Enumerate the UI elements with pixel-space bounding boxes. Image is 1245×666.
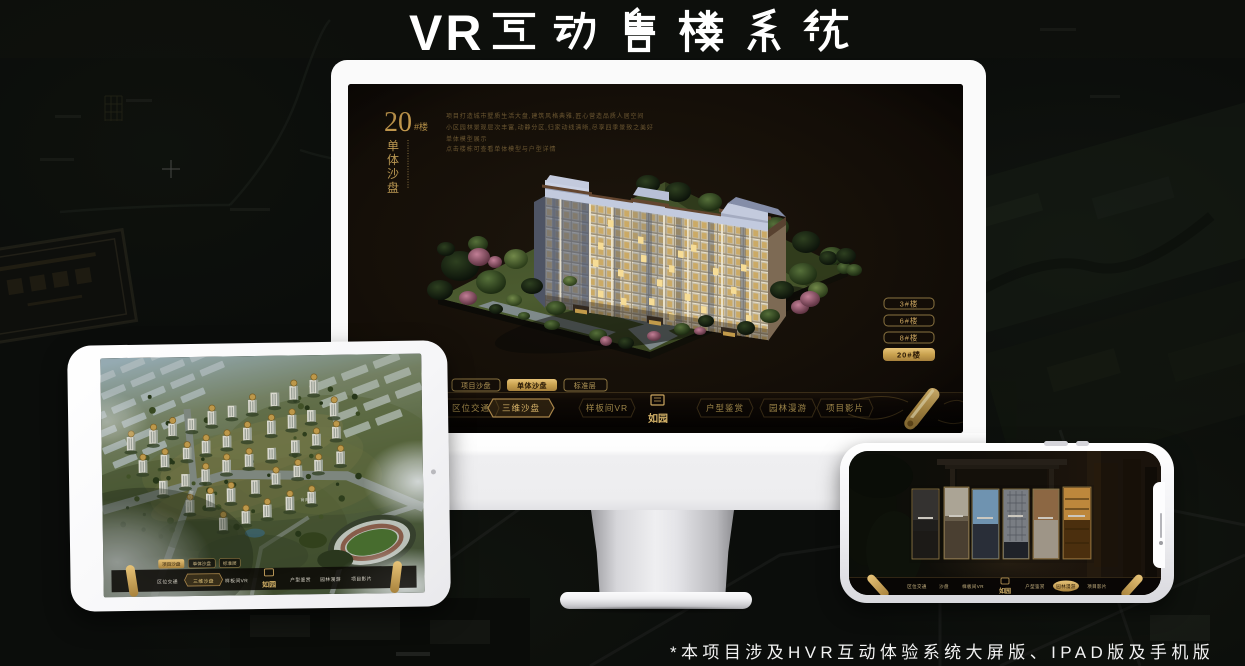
svg-text:项目影片: 项目影片 [1087, 583, 1107, 590]
svg-text:沙盘: 沙盘 [939, 583, 949, 589]
svg-text:户型鉴赏: 户型鉴赏 [1025, 583, 1045, 590]
svg-text:如园: 如园 [262, 580, 276, 589]
svg-text:园林漫游: 园林漫游 [1056, 583, 1076, 590]
svg-text:VR: VR [409, 5, 484, 57]
svg-text:区位交通: 区位交通 [907, 583, 927, 590]
svg-text:如园: 如园 [999, 587, 1011, 595]
svg-text:样板间VR: 样板间VR [962, 583, 984, 590]
